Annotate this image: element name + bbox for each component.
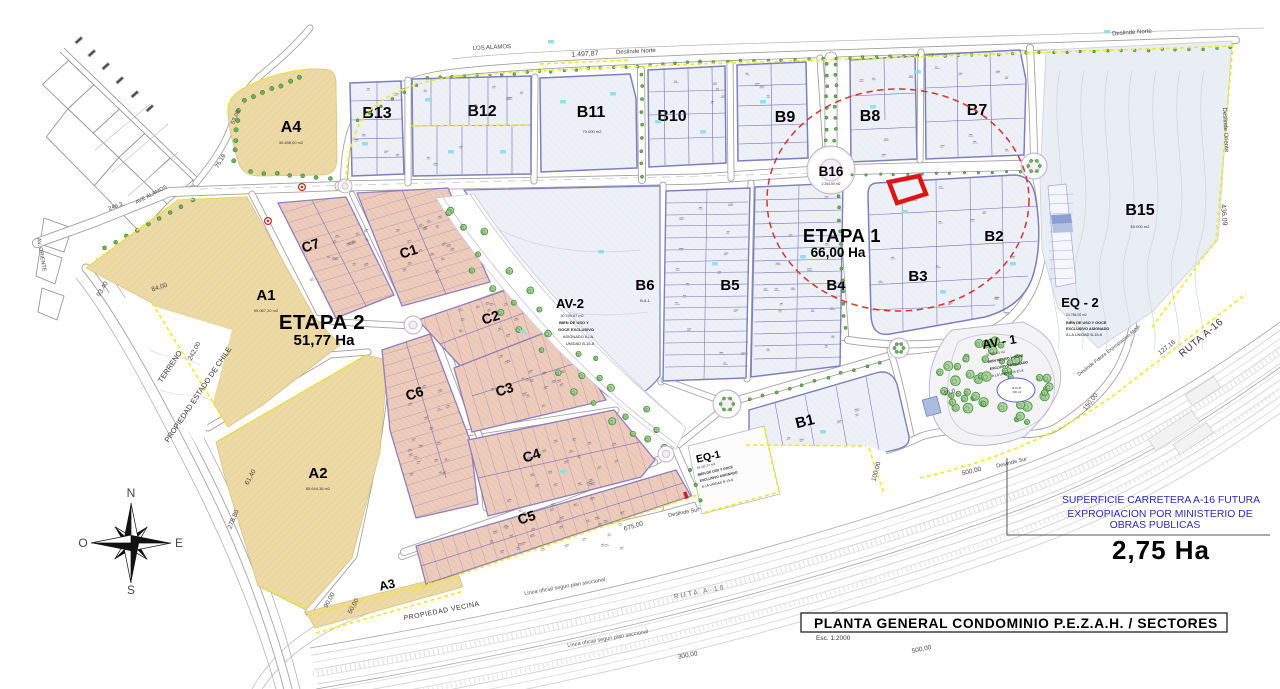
svg-text:A1: A1 xyxy=(256,287,275,304)
svg-text:B2: B2 xyxy=(984,228,1003,245)
svg-text:ETAPA 1: ETAPA 1 xyxy=(803,225,881,246)
svg-text:B16: B16 xyxy=(819,164,844,179)
svg-text:24.786,00 m2: 24.786,00 m2 xyxy=(1066,313,1087,317)
svg-text:S: S xyxy=(127,583,135,597)
svg-text:OBRAS PUBLICAS: OBRAS PUBLICAS xyxy=(1110,520,1201,531)
svg-text:B3: B3 xyxy=(908,268,927,285)
svg-text:EXCLUSIVO ASIGNADO: EXCLUSIVO ASIGNADO xyxy=(1066,327,1109,331)
svg-text:51,77 Ha: 51,77 Ha xyxy=(294,332,356,349)
svg-text:A2: A2 xyxy=(308,465,327,482)
svg-text:EQ - 2: EQ - 2 xyxy=(1061,295,1099,310)
svg-text:70.000 m2: 70.000 m2 xyxy=(583,129,603,134)
svg-text:O: O xyxy=(78,536,87,550)
svg-text:Esc. 1:2000: Esc. 1:2000 xyxy=(816,635,851,642)
svg-text:50.000 m2: 50.000 m2 xyxy=(1131,224,1151,229)
svg-text:66,00 Ha: 66,00 Ha xyxy=(811,245,866,260)
svg-text:1.497,87: 1.497,87 xyxy=(571,50,599,58)
svg-text:PLANTA GENERAL CONDOMINIO P.E.: PLANTA GENERAL CONDOMINIO P.E.Z.A.H. / S… xyxy=(814,616,1218,631)
svg-text:B5: B5 xyxy=(720,277,739,294)
svg-text:B12: B12 xyxy=(467,103,496,120)
svg-text:SUPERFICIE CARRETERA A-16 FUTU: SUPERFICIE CARRETERA A-16 FUTURA xyxy=(1062,495,1260,506)
svg-text:UNIDAD B-15-8: UNIDAD B-15-8 xyxy=(566,341,595,346)
svg-text:ETAPA 2: ETAPA 2 xyxy=(279,311,365,334)
svg-text:B11: B11 xyxy=(577,104,606,121)
svg-text:300 m2: 300 m2 xyxy=(1013,390,1022,394)
svg-text:B-6-1: B-6-1 xyxy=(640,298,651,303)
svg-text:30.790,87 m2: 30.790,87 m2 xyxy=(560,314,583,318)
svg-text:N: N xyxy=(127,486,136,500)
svg-text:B10: B10 xyxy=(657,108,686,125)
svg-text:30.458,00 m2: 30.458,00 m2 xyxy=(279,140,304,145)
svg-text:2,75 Ha: 2,75 Ha xyxy=(1112,535,1210,565)
svg-text:BIEN DE USO Y: BIEN DE USO Y xyxy=(559,320,589,325)
svg-text:99.067,20 m2: 99.067,20 m2 xyxy=(254,308,279,313)
svg-text:B15: B15 xyxy=(1125,202,1154,219)
svg-text:B9: B9 xyxy=(775,109,796,126)
svg-text:2.264,00 m2: 2.264,00 m2 xyxy=(822,182,841,186)
svg-text:A LA UNIDAD B-15-8: A LA UNIDAD B-15-8 xyxy=(1066,333,1102,337)
svg-text:A4: A4 xyxy=(281,119,302,136)
svg-text:E: E xyxy=(175,536,183,550)
svg-text:BIEN DE USO Y GOCE: BIEN DE USO Y GOCE xyxy=(1066,321,1107,325)
svg-text:B6: B6 xyxy=(635,277,654,294)
svg-text:B8: B8 xyxy=(860,108,881,125)
svg-text:EXPROPIACION POR MINISTERIO DE: EXPROPIACION POR MINISTERIO DE xyxy=(1067,509,1252,520)
svg-text:B-16-01: B-16-01 xyxy=(1012,386,1022,390)
svg-text:AV-2: AV-2 xyxy=(556,296,584,311)
svg-text:ASIGNADO A LA: ASIGNADO A LA xyxy=(563,334,594,339)
svg-text:GOCE EXCLUSIVO: GOCE EXCLUSIVO xyxy=(558,327,594,332)
svg-text:85.644,36 m2: 85.644,36 m2 xyxy=(306,486,331,491)
